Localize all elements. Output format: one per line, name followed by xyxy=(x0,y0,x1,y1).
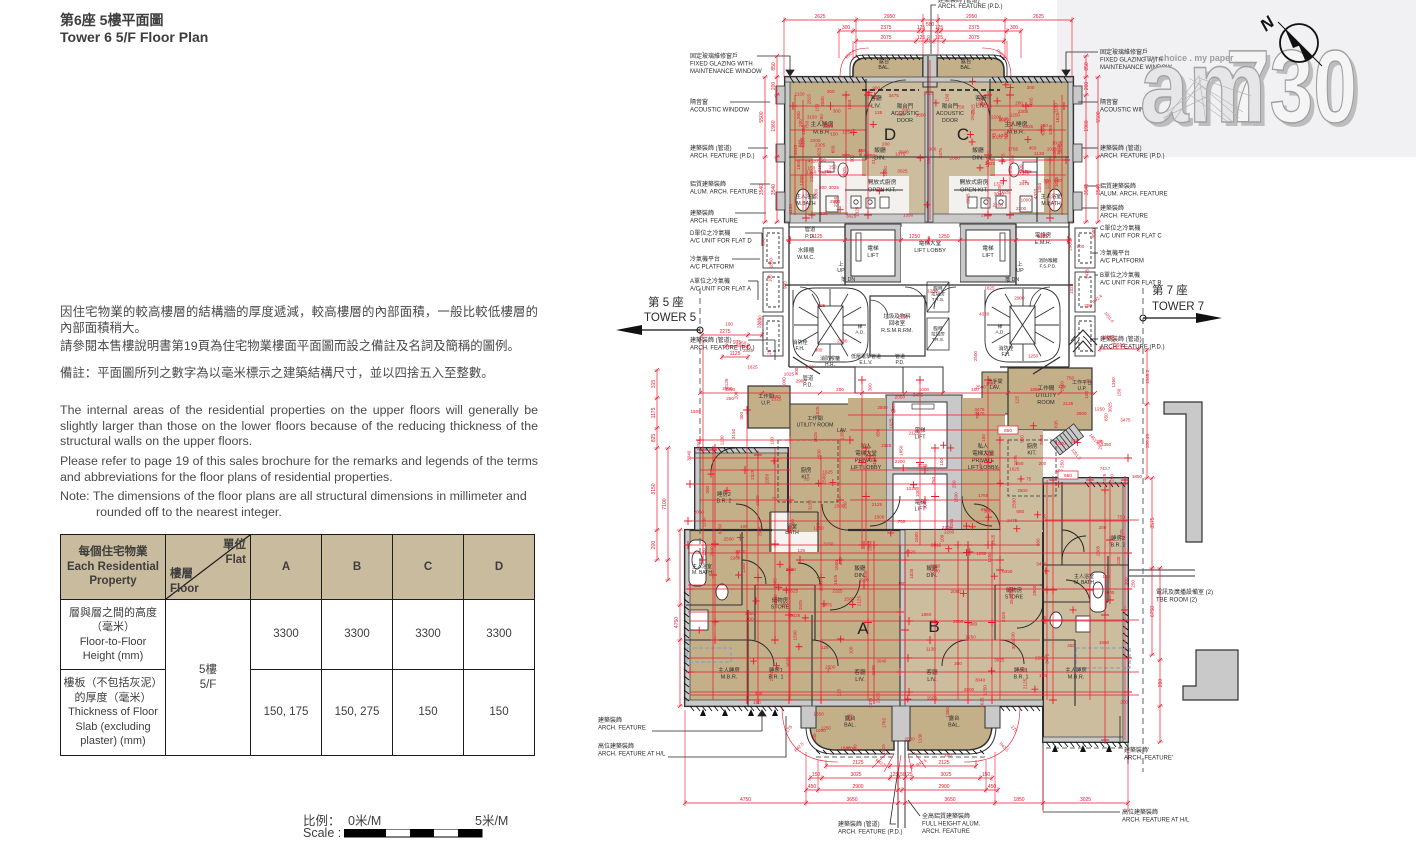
svg-text:900: 900 xyxy=(1077,244,1085,249)
svg-text:1850: 1850 xyxy=(1132,474,1143,479)
svg-text:2475: 2475 xyxy=(1007,518,1018,523)
svg-text:125: 125 xyxy=(935,25,944,31)
svg-text:200: 200 xyxy=(771,82,777,91)
svg-text:3025: 3025 xyxy=(897,169,908,174)
svg-text:1825: 1825 xyxy=(815,406,820,417)
svg-text:2900: 2900 xyxy=(1032,585,1037,596)
svg-text:200: 200 xyxy=(1099,525,1107,530)
svg-text:1500: 1500 xyxy=(793,630,798,641)
svg-text:1500: 1500 xyxy=(891,403,896,414)
svg-text:建築裝飾 (管道)ARCH. FEATURE (P.D.): 建築裝飾 (管道)ARCH. FEATURE (P.D.) xyxy=(838,820,902,835)
svg-text:TOWER 7: TOWER 7 xyxy=(1152,301,1204,313)
svg-text:250: 250 xyxy=(1059,460,1064,468)
svg-text:1350: 1350 xyxy=(1037,182,1042,193)
svg-text:落 DN: 落 DN xyxy=(841,275,855,283)
svg-text:75: 75 xyxy=(772,496,778,501)
svg-text:主人浴室M. BATH: 主人浴室M. BATH xyxy=(692,563,712,576)
svg-text:1130: 1130 xyxy=(918,733,923,743)
svg-text:3475: 3475 xyxy=(938,148,943,159)
svg-text:3150: 3150 xyxy=(790,519,795,530)
svg-text:飯廳DIN.: 飯廳DIN. xyxy=(972,146,984,161)
svg-text:450: 450 xyxy=(1029,146,1037,151)
svg-text:125: 125 xyxy=(935,35,944,41)
svg-text:3540: 3540 xyxy=(771,184,777,195)
svg-text:TOWER 5: TOWER 5 xyxy=(644,312,696,324)
svg-text:890: 890 xyxy=(1158,679,1164,688)
svg-text:2925: 2925 xyxy=(875,693,880,704)
svg-text:建築裝飾ARCH. FEATURE: 建築裝飾ARCH. FEATURE xyxy=(598,716,646,731)
svg-text:2375: 2375 xyxy=(968,25,979,31)
svg-text:3025: 3025 xyxy=(1080,797,1091,803)
svg-text:125: 125 xyxy=(1014,396,1019,404)
svg-text:75: 75 xyxy=(1086,379,1092,384)
svg-text:900: 900 xyxy=(1019,435,1024,443)
svg-text:1500: 1500 xyxy=(796,159,801,170)
svg-text:900: 900 xyxy=(796,111,801,119)
svg-text:5500: 5500 xyxy=(1096,111,1102,122)
svg-text:3025: 3025 xyxy=(817,147,822,158)
svg-text:125: 125 xyxy=(917,25,926,31)
svg-text:250: 250 xyxy=(1131,580,1136,588)
svg-text:300: 300 xyxy=(1010,25,1019,31)
svg-text:2075: 2075 xyxy=(880,35,891,41)
svg-text:1250: 1250 xyxy=(938,234,949,240)
svg-text:650: 650 xyxy=(1104,413,1109,421)
svg-text:1625: 1625 xyxy=(1055,112,1060,123)
svg-text:R42.5: R42.5 xyxy=(875,758,888,768)
svg-text:650: 650 xyxy=(831,145,836,153)
svg-text:125: 125 xyxy=(797,548,805,553)
svg-text:635: 635 xyxy=(812,733,817,741)
svg-text:3150: 3150 xyxy=(823,541,834,546)
svg-text:消防喉轆F.S.P.D.: 消防喉轆F.S.P.D. xyxy=(1038,257,1057,270)
svg-text:1960: 1960 xyxy=(771,120,777,131)
svg-text:電梯LIFT: 電梯LIFT xyxy=(867,244,879,259)
svg-text:3475: 3475 xyxy=(1120,418,1131,423)
svg-text:750: 750 xyxy=(1117,514,1125,519)
svg-text:3150: 3150 xyxy=(807,114,818,119)
svg-text:主人浴室M. BATH: 主人浴室M. BATH xyxy=(1074,573,1094,586)
svg-text:1625: 1625 xyxy=(813,432,818,443)
svg-text:3575: 3575 xyxy=(1150,517,1156,528)
svg-text:1500: 1500 xyxy=(1008,586,1013,597)
svg-text:1625: 1625 xyxy=(1009,467,1020,472)
svg-text:主人睡房M.B.R.: 主人睡房M.B.R. xyxy=(1065,666,1087,681)
svg-text:2325: 2325 xyxy=(750,469,755,480)
svg-text:635: 635 xyxy=(848,713,853,721)
svg-text:建築裝飾 (管道)ARCH. FEATURE (P.D.): 建築裝飾 (管道)ARCH. FEATURE (P.D.) xyxy=(690,144,754,159)
svg-text:2050: 2050 xyxy=(951,589,962,594)
svg-text:125: 125 xyxy=(818,303,826,308)
svg-text:250: 250 xyxy=(1084,303,1092,308)
svg-text:高位建築裝飾ARCH. FEATURE AT H/L: 高位建築裝飾ARCH. FEATURE AT H/L xyxy=(1122,808,1190,823)
svg-text:1025: 1025 xyxy=(909,568,914,579)
svg-text:1960: 1960 xyxy=(1084,120,1090,131)
svg-text:客廳LIV.: 客廳LIV. xyxy=(870,94,882,109)
svg-text:1825: 1825 xyxy=(984,285,995,290)
svg-text:1825: 1825 xyxy=(747,364,758,369)
svg-text:1261.3: 1261.3 xyxy=(1070,448,1082,462)
svg-text:3025: 3025 xyxy=(790,613,801,618)
svg-text:2325: 2325 xyxy=(1023,124,1034,129)
svg-text:1350: 1350 xyxy=(1101,442,1112,447)
svg-text:315: 315 xyxy=(651,380,657,389)
svg-text:650: 650 xyxy=(1016,461,1024,466)
svg-text:2075: 2075 xyxy=(968,35,979,41)
svg-text:100: 100 xyxy=(939,534,944,542)
svg-text:1025: 1025 xyxy=(1069,283,1074,294)
svg-text:1500: 1500 xyxy=(1056,441,1067,446)
svg-text:主人睡房M.B.R.: 主人睡房M.B.R. xyxy=(718,666,740,681)
svg-text:1000: 1000 xyxy=(814,189,819,200)
svg-text:250: 250 xyxy=(726,396,734,401)
svg-text:1500: 1500 xyxy=(930,568,941,573)
svg-text:200: 200 xyxy=(836,387,844,392)
svg-text:2500: 2500 xyxy=(979,96,984,107)
svg-text:125: 125 xyxy=(1058,384,1066,389)
svg-text:開放式廚房OPEN KIT.: 開放式廚房OPEN KIT. xyxy=(960,178,989,193)
svg-text:650: 650 xyxy=(1004,428,1012,434)
svg-text:1350: 1350 xyxy=(945,707,950,718)
svg-text:高位建築裝飾ARCH. FEATURE AT H/L: 高位建築裝飾ARCH. FEATURE AT H/L xyxy=(598,742,666,757)
svg-text:2050: 2050 xyxy=(1039,434,1044,445)
svg-text:1130: 1130 xyxy=(795,92,805,97)
svg-text:7100: 7100 xyxy=(662,498,668,509)
svg-text:150: 150 xyxy=(898,581,906,586)
svg-text:2900: 2900 xyxy=(837,338,848,343)
svg-text:3475: 3475 xyxy=(1019,181,1030,186)
svg-text:1350: 1350 xyxy=(985,157,990,168)
svg-text:2125: 2125 xyxy=(856,596,861,607)
svg-text:900: 900 xyxy=(815,348,823,353)
svg-text:1250: 1250 xyxy=(909,234,920,240)
svg-text:1545.2: 1545.2 xyxy=(1145,370,1150,384)
svg-text:6350: 6350 xyxy=(718,523,723,534)
svg-text:150: 150 xyxy=(812,772,821,778)
svg-text:1130: 1130 xyxy=(1034,151,1044,156)
svg-text:1500: 1500 xyxy=(914,532,919,543)
svg-text:635: 635 xyxy=(1054,420,1059,428)
svg-text:200: 200 xyxy=(651,541,657,550)
svg-text:2050: 2050 xyxy=(694,509,705,514)
svg-text:2625: 2625 xyxy=(1033,14,1044,20)
svg-text:1250: 1250 xyxy=(982,685,987,696)
svg-text:客廳LIV.: 客廳LIV. xyxy=(926,668,938,683)
svg-text:2125: 2125 xyxy=(938,760,949,766)
svg-text:2125: 2125 xyxy=(909,430,920,435)
svg-text:露台BAL.: 露台BAL. xyxy=(960,57,971,71)
svg-text:750: 750 xyxy=(898,519,906,524)
svg-text:R42.5: R42.5 xyxy=(998,741,1010,753)
svg-text:電訊及廣播設備室 (2)TBE ROOM (2): 電訊及廣播設備室 (2)TBE ROOM (2) xyxy=(1156,588,1213,603)
svg-text:2500: 2500 xyxy=(871,665,876,676)
svg-text:2815: 2815 xyxy=(807,94,812,105)
svg-text:250: 250 xyxy=(819,114,824,122)
svg-text:125: 125 xyxy=(1039,673,1047,678)
svg-text:2050: 2050 xyxy=(895,394,906,399)
svg-text:廚房KIT.: 廚房KIT. xyxy=(1027,442,1038,457)
svg-text:4125: 4125 xyxy=(811,234,822,240)
svg-text:2325: 2325 xyxy=(966,193,971,204)
svg-text:2900: 2900 xyxy=(964,687,975,692)
svg-text:1130: 1130 xyxy=(926,647,936,652)
svg-text:my choice . my paper: my choice . my paper xyxy=(1144,53,1234,63)
svg-text:1350: 1350 xyxy=(745,611,756,616)
svg-text:1825: 1825 xyxy=(1119,529,1124,540)
svg-text:3540: 3540 xyxy=(759,184,765,195)
svg-text:2325: 2325 xyxy=(823,124,834,129)
svg-text:150: 150 xyxy=(830,132,838,137)
svg-text:2500: 2500 xyxy=(904,736,915,741)
svg-text:1000: 1000 xyxy=(915,486,920,497)
svg-text:750: 750 xyxy=(1066,375,1074,380)
svg-text:2200: 2200 xyxy=(810,138,821,143)
svg-text:2900: 2900 xyxy=(1076,411,1087,416)
svg-text:150: 150 xyxy=(815,103,820,111)
svg-text:1025: 1025 xyxy=(992,135,1003,140)
svg-text:3040: 3040 xyxy=(1091,228,1096,239)
svg-text:2925: 2925 xyxy=(798,600,803,611)
svg-text:2500: 2500 xyxy=(1017,488,1028,493)
svg-text:1000: 1000 xyxy=(815,728,826,733)
svg-text:2050: 2050 xyxy=(868,540,873,551)
svg-text:125: 125 xyxy=(904,772,913,778)
svg-text:900: 900 xyxy=(1003,131,1008,139)
svg-text:3475: 3475 xyxy=(1085,268,1090,279)
svg-text:1625: 1625 xyxy=(788,588,799,593)
svg-text:150: 150 xyxy=(753,700,761,705)
svg-text:1250: 1250 xyxy=(1010,113,1021,118)
svg-text:第 7 座: 第 7 座 xyxy=(1152,283,1188,297)
svg-text:2500: 2500 xyxy=(825,664,836,669)
svg-text:300: 300 xyxy=(1027,85,1035,90)
svg-text:3475: 3475 xyxy=(889,93,900,98)
svg-text:2325: 2325 xyxy=(1019,171,1030,176)
svg-text:1025: 1025 xyxy=(986,382,997,387)
svg-text:2925: 2925 xyxy=(842,167,847,178)
svg-text:1000: 1000 xyxy=(1104,590,1115,595)
svg-text:200: 200 xyxy=(1011,632,1016,640)
svg-text:900: 900 xyxy=(782,281,787,289)
svg-text:100: 100 xyxy=(780,601,788,606)
svg-text:睡房2B.R. 2: 睡房2B.R. 2 xyxy=(717,490,732,505)
svg-text:900: 900 xyxy=(872,86,880,91)
svg-text:1350: 1350 xyxy=(1111,377,1116,388)
svg-text:隔音窗ACOUSTIC WINDOW: 隔音窗ACOUSTIC WINDOW xyxy=(690,98,749,113)
svg-text:1025: 1025 xyxy=(784,371,795,376)
svg-text:650: 650 xyxy=(1016,509,1024,514)
svg-text:1350: 1350 xyxy=(847,99,852,110)
svg-text:2200: 2200 xyxy=(895,459,906,464)
svg-text:3025: 3025 xyxy=(940,772,951,778)
svg-text:客廳LIV.: 客廳LIV. xyxy=(854,668,866,683)
svg-text:100: 100 xyxy=(768,274,773,282)
svg-text:C單位之冷氣機A/C UNIT FOR FLAT C: C單位之冷氣機A/C UNIT FOR FLAT C xyxy=(1100,224,1162,239)
svg-text:3650: 3650 xyxy=(944,797,955,803)
svg-text:管道P.D.: 管道P.D. xyxy=(895,353,905,366)
svg-text:1025: 1025 xyxy=(990,534,995,545)
svg-text:2050: 2050 xyxy=(765,473,770,484)
svg-text:850: 850 xyxy=(771,62,777,71)
svg-text:1250: 1250 xyxy=(1028,354,1039,359)
svg-text:1250: 1250 xyxy=(736,340,747,345)
svg-text:3040: 3040 xyxy=(686,450,691,461)
svg-text:2900: 2900 xyxy=(830,199,841,204)
svg-text:300: 300 xyxy=(705,485,710,493)
svg-text:1850: 1850 xyxy=(768,258,773,269)
svg-text:2950: 2950 xyxy=(966,14,977,20)
svg-text:1000: 1000 xyxy=(919,387,930,392)
svg-text:1850: 1850 xyxy=(898,445,903,456)
svg-text:125: 125 xyxy=(875,110,883,115)
svg-text:1265: 1265 xyxy=(801,124,806,135)
svg-text:2500: 2500 xyxy=(1012,498,1017,509)
svg-text:冷氣機平台A/C PLATFORM: 冷氣機平台A/C PLATFORM xyxy=(690,255,734,270)
svg-text:3150: 3150 xyxy=(651,483,657,494)
svg-text:1625: 1625 xyxy=(923,90,934,95)
svg-text:2050: 2050 xyxy=(1008,165,1013,176)
svg-text:1765: 1765 xyxy=(1008,147,1019,152)
svg-text:1500: 1500 xyxy=(874,514,885,519)
svg-text:鋁質建築裝飾ALUM. ARCH. FEATURE: 鋁質建築裝飾ALUM. ARCH. FEATURE xyxy=(690,180,758,195)
svg-text:1850: 1850 xyxy=(1030,387,1041,392)
svg-text:3040: 3040 xyxy=(773,594,778,605)
svg-text:3040: 3040 xyxy=(975,678,986,683)
svg-text:2500: 2500 xyxy=(877,405,888,410)
svg-text:固定玻璃維修窗戶FIXED GLAZING WITHMAIN: 固定玻璃維修窗戶FIXED GLAZING WITHMAINTENANCE WI… xyxy=(690,52,762,75)
svg-text:2200: 2200 xyxy=(1016,206,1027,211)
svg-text:1011.4: 1011.4 xyxy=(1103,311,1115,324)
svg-text:1375: 1375 xyxy=(868,697,873,708)
svg-text:2500: 2500 xyxy=(786,567,797,572)
svg-text:200: 200 xyxy=(1039,461,1047,466)
svg-text:1025: 1025 xyxy=(1102,473,1107,484)
svg-text:A單位之冷氣機A/C UNIT FOR FLAT A: A單位之冷氣機A/C UNIT FOR FLAT A xyxy=(690,277,751,292)
svg-text:1250: 1250 xyxy=(927,289,938,294)
svg-text:650: 650 xyxy=(876,428,881,436)
svg-text:1350: 1350 xyxy=(903,213,914,218)
svg-text:4320: 4320 xyxy=(905,550,916,555)
svg-text:125: 125 xyxy=(917,35,926,41)
svg-text:100: 100 xyxy=(944,753,952,758)
svg-text:250: 250 xyxy=(952,480,957,488)
svg-text:1625: 1625 xyxy=(979,697,984,708)
svg-text:2500: 2500 xyxy=(821,474,826,485)
svg-text:1350: 1350 xyxy=(799,175,804,186)
svg-text:580: 580 xyxy=(926,22,935,28)
svg-text:2500: 2500 xyxy=(1035,655,1046,660)
svg-text:900: 900 xyxy=(794,367,799,375)
svg-text:100: 100 xyxy=(725,322,733,327)
svg-text:2125: 2125 xyxy=(852,760,863,766)
svg-text:2325: 2325 xyxy=(1001,612,1006,623)
svg-text:2900: 2900 xyxy=(981,213,992,218)
svg-text:650: 650 xyxy=(1064,473,1072,479)
svg-text:200: 200 xyxy=(1084,82,1090,91)
svg-text:1250: 1250 xyxy=(987,552,992,563)
svg-text:3025: 3025 xyxy=(917,463,928,468)
svg-text:2900: 2900 xyxy=(1014,296,1025,301)
svg-text:3025: 3025 xyxy=(829,185,840,190)
svg-text:2500: 2500 xyxy=(724,536,735,541)
svg-text:125: 125 xyxy=(767,349,772,357)
svg-text:320: 320 xyxy=(926,35,931,43)
svg-text:落 DN: 落 DN xyxy=(1005,275,1019,283)
svg-text:1025: 1025 xyxy=(1052,140,1063,145)
svg-text:2910: 2910 xyxy=(1114,343,1125,349)
svg-text:200: 200 xyxy=(1015,100,1023,105)
svg-text:100: 100 xyxy=(852,744,857,752)
svg-text:3025: 3025 xyxy=(999,118,1010,123)
svg-text:825: 825 xyxy=(651,434,657,443)
svg-text:100: 100 xyxy=(981,434,986,442)
svg-text:450: 450 xyxy=(838,557,843,565)
svg-text:1625: 1625 xyxy=(833,574,838,585)
svg-text:100: 100 xyxy=(849,646,854,654)
svg-text:1625: 1625 xyxy=(823,470,834,475)
svg-text:第 5 座: 第 5 座 xyxy=(648,295,684,309)
svg-text:150: 150 xyxy=(1117,388,1122,396)
svg-text:6750: 6750 xyxy=(1150,606,1156,617)
svg-text:300: 300 xyxy=(739,412,744,420)
svg-text:4750: 4750 xyxy=(740,797,751,803)
svg-text:2125: 2125 xyxy=(724,378,729,389)
svg-text:1350: 1350 xyxy=(1110,334,1115,345)
svg-text:900: 900 xyxy=(1054,178,1062,183)
svg-text:2200: 2200 xyxy=(944,529,955,534)
svg-text:100: 100 xyxy=(769,437,774,445)
svg-text:1825: 1825 xyxy=(840,745,851,750)
svg-text:1825: 1825 xyxy=(881,744,886,755)
svg-text:300: 300 xyxy=(842,25,851,31)
svg-text:3540: 3540 xyxy=(1096,184,1102,195)
svg-text:1250: 1250 xyxy=(966,634,977,639)
svg-text:100: 100 xyxy=(971,387,979,392)
svg-text:450: 450 xyxy=(858,148,866,153)
svg-text:2305: 2305 xyxy=(1096,545,1101,556)
svg-text:2325: 2325 xyxy=(771,397,782,402)
svg-text:2625: 2625 xyxy=(814,14,825,20)
svg-text:3150: 3150 xyxy=(731,428,736,439)
svg-text:300: 300 xyxy=(868,383,873,391)
svg-text:2500: 2500 xyxy=(709,546,714,557)
svg-text:D單位之冷氣機A/C UNIT FOR FLAT D: D單位之冷氣機A/C UNIT FOR FLAT D xyxy=(690,229,752,244)
svg-text:水錶櫃W.M.C.: 水錶櫃W.M.C. xyxy=(797,246,815,261)
svg-text:100: 100 xyxy=(939,458,944,466)
svg-text:150: 150 xyxy=(944,93,949,101)
svg-text:2200: 2200 xyxy=(730,556,741,561)
svg-text:200: 200 xyxy=(902,108,910,113)
svg-text:2200: 2200 xyxy=(993,202,1004,207)
svg-text:175: 175 xyxy=(1010,724,1019,733)
svg-text:75: 75 xyxy=(804,477,810,482)
svg-text:3540: 3540 xyxy=(1084,184,1090,195)
svg-text:1130: 1130 xyxy=(1053,103,1058,113)
svg-text:全高鋁質建築裝飾FULL HEIGHT ALUM.ARCH.: 全高鋁質建築裝飾FULL HEIGHT ALUM.ARCH. FEATURE xyxy=(922,812,981,835)
svg-text:250: 250 xyxy=(1120,700,1128,705)
svg-text:3475: 3475 xyxy=(984,452,995,457)
svg-text:2325: 2325 xyxy=(881,443,892,448)
svg-text:650: 650 xyxy=(1010,155,1015,163)
svg-text:2900: 2900 xyxy=(938,784,949,790)
svg-text:1375: 1375 xyxy=(895,151,906,156)
svg-text:2950: 2950 xyxy=(884,14,895,20)
svg-text:250: 250 xyxy=(1042,514,1047,522)
svg-text:1850: 1850 xyxy=(916,113,927,118)
svg-text:2200: 2200 xyxy=(898,314,909,319)
svg-text:150: 150 xyxy=(702,548,707,556)
svg-text:建築裝飾ARCH. FEATURE: 建築裝飾ARCH. FEATURE xyxy=(1100,204,1148,219)
